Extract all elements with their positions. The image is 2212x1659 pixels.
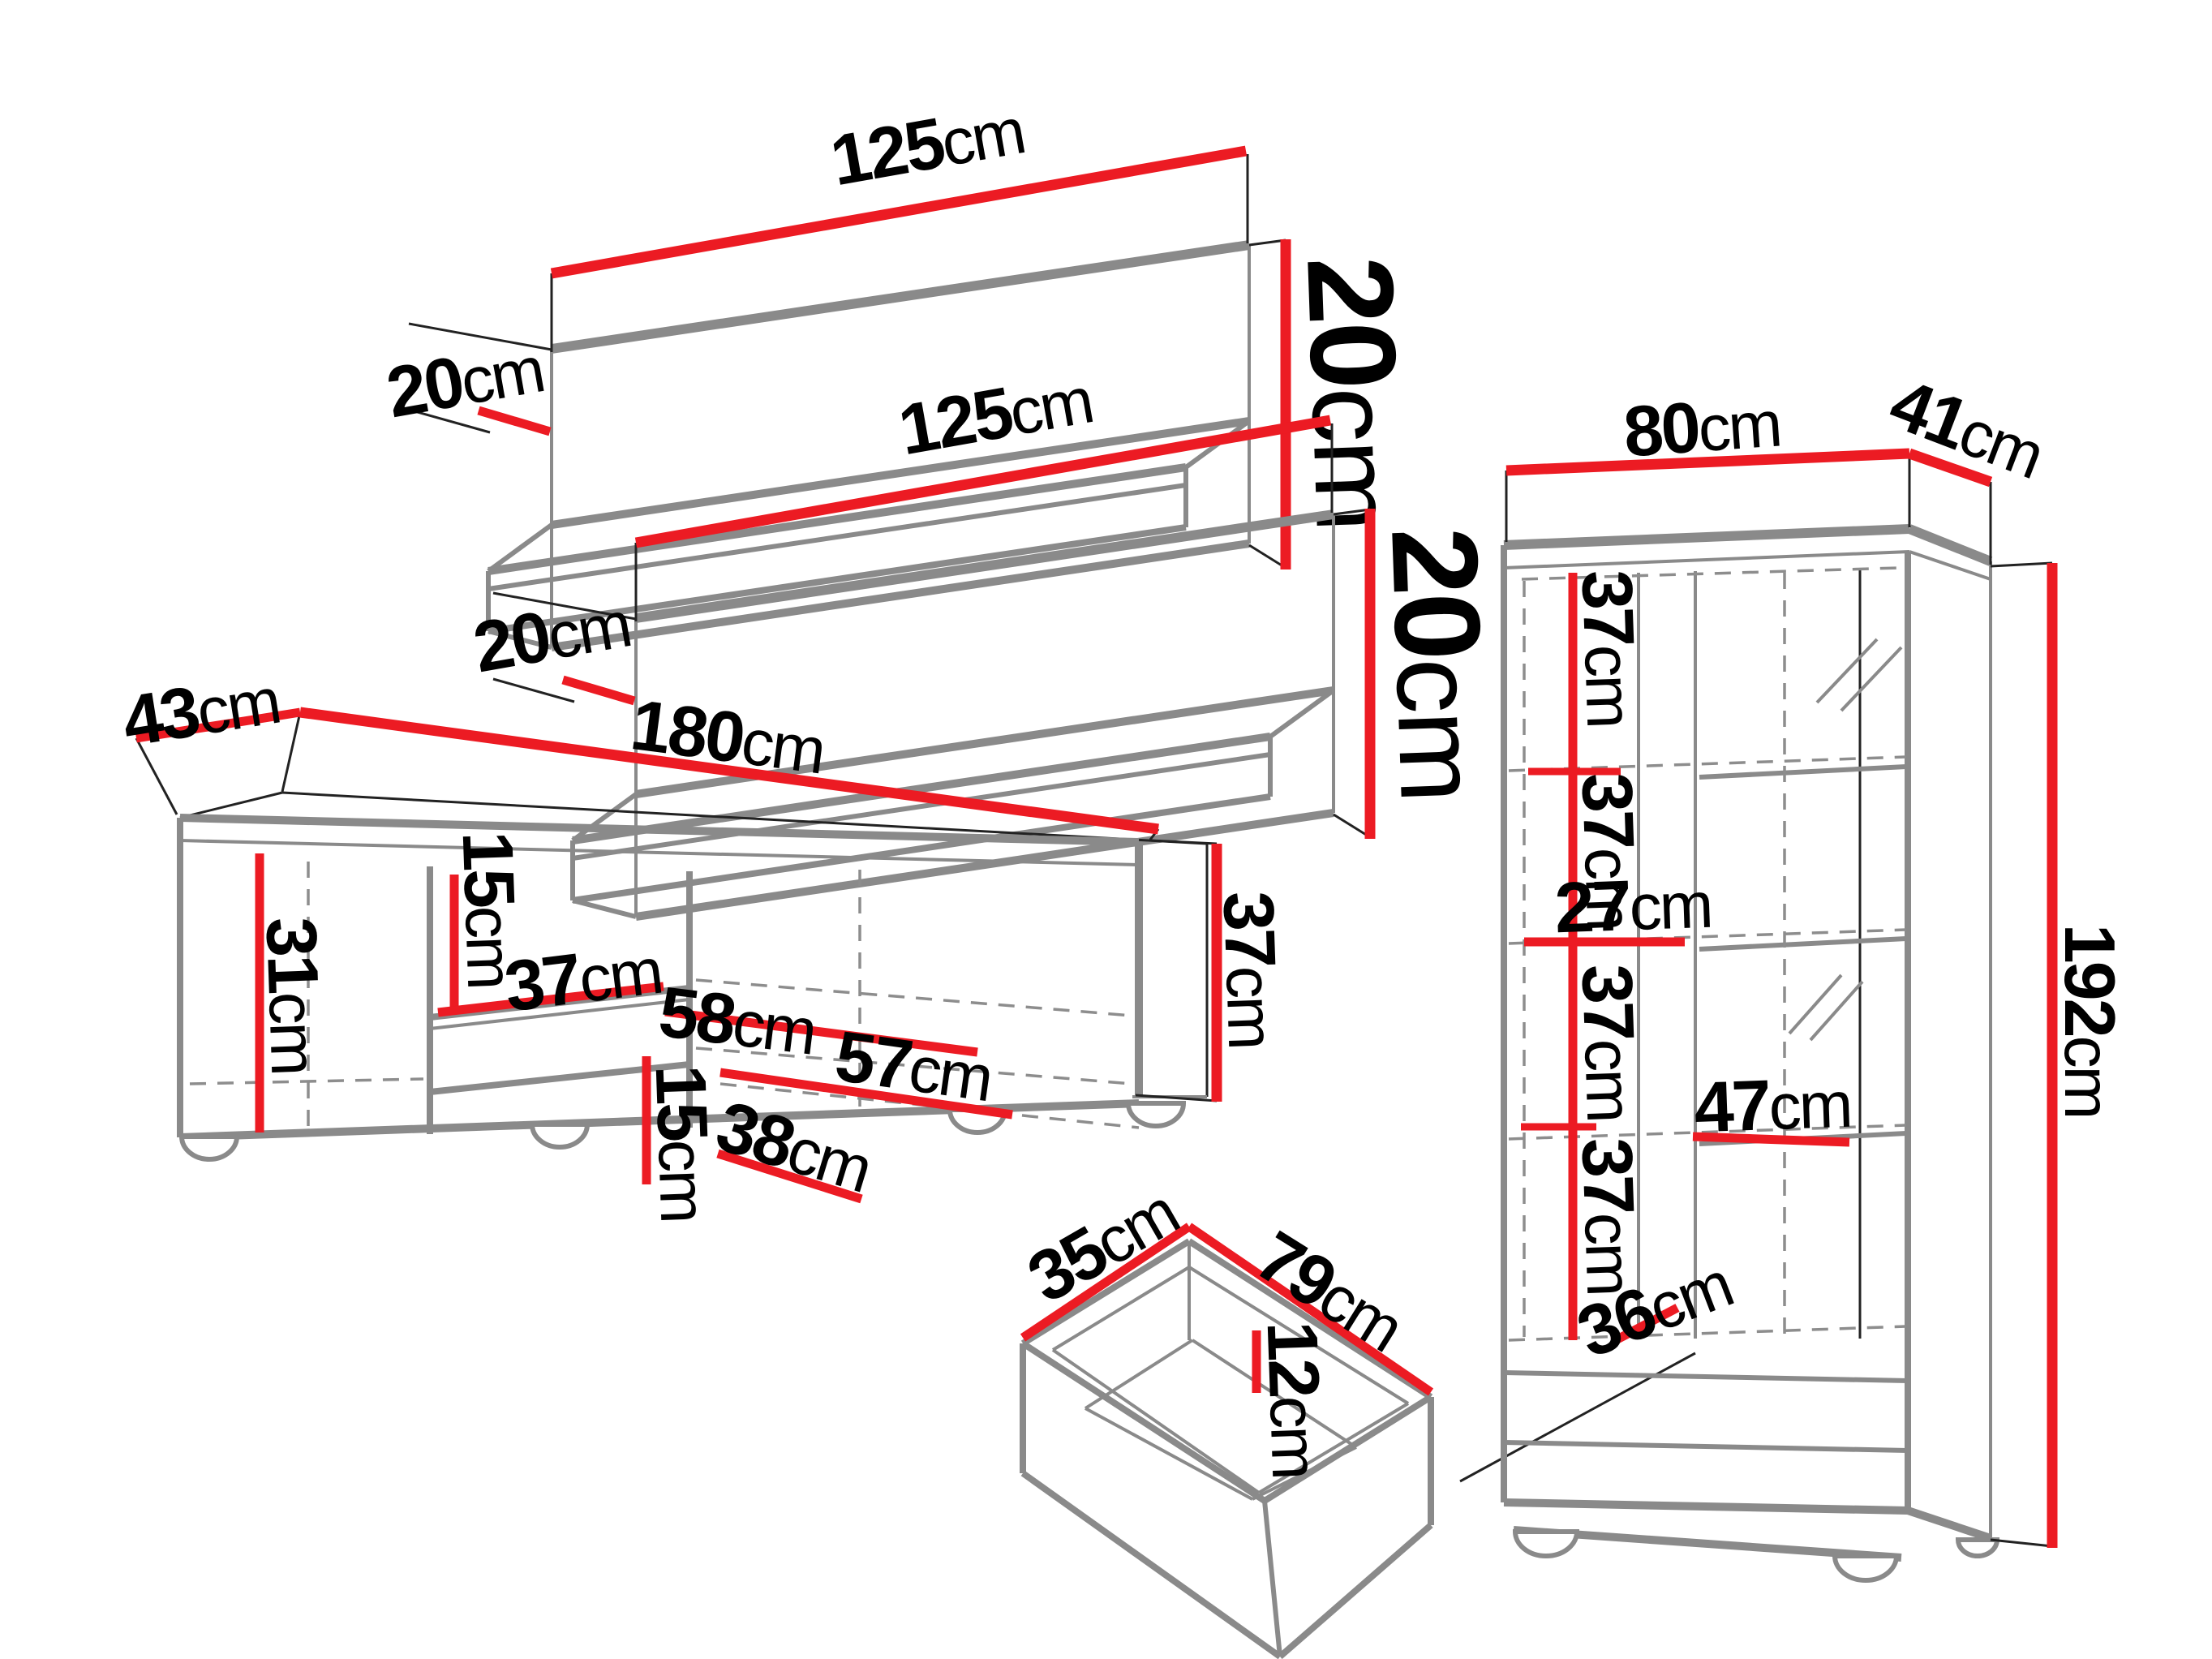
tv-stand: 43cm 180cm 37cm 31cm 15cm 37cm 58cm 57cm… — [117, 658, 1294, 1223]
dim-cabinet-shelf-gap-4: 37cm — [1567, 1137, 1653, 1296]
display-cabinet: 80cm 41cm 192cm 37cm 37cm 27cm 37cm 47cm… — [1504, 363, 2130, 1580]
dim-tvstand-depth: 43cm — [117, 658, 284, 762]
dim-shelf1-height: 20cm — [1282, 254, 1428, 531]
dim-tvstand-width: 180cm — [626, 684, 828, 789]
wall-shelf-top: 125cm 20cm 20cm — [380, 88, 1427, 647]
dim-shelf1-depth: 20cm — [380, 326, 548, 432]
dim-tvstand-niche-width: 58cm — [655, 971, 819, 1070]
dim-cabinet-left-col-width: 27cm — [1553, 862, 1712, 948]
dim-shelf2-height: 20cm — [1366, 525, 1512, 802]
dim-cabinet-shelf-gap-1: 37cm — [1567, 569, 1653, 728]
dim-drawer-height: 12cm — [1252, 1320, 1338, 1479]
furniture-dimensions-diagram: 125cm 20cm 20cm 125cm 20cm — [0, 0, 2212, 1659]
dim-cabinet-right-col-width: 47cm — [1693, 1062, 1852, 1148]
dim-cabinet-height: 192cm — [2050, 924, 2130, 1117]
dim-tvstand-height: 37cm — [1209, 890, 1295, 1049]
diagram-canvas: 125cm 20cm 20cm 125cm 20cm — [0, 0, 2212, 1659]
glass-marks — [1789, 639, 1901, 1040]
dim-cabinet-width: 80cm — [1621, 380, 1782, 471]
dim-shelf1-width: 125cm — [825, 88, 1029, 201]
dim-shelf2-width: 125cm — [893, 358, 1097, 471]
dim-cabinet-shelf-gap-3: 37cm — [1567, 963, 1653, 1122]
dimension-lines — [479, 151, 1286, 569]
dim-tvstand-inner-left-height: 31cm — [251, 916, 337, 1075]
dim-tvstand-lower-niche-width: 38cm — [707, 1085, 880, 1207]
dim-tvstand-right-inner-width: 57cm — [831, 1015, 996, 1116]
